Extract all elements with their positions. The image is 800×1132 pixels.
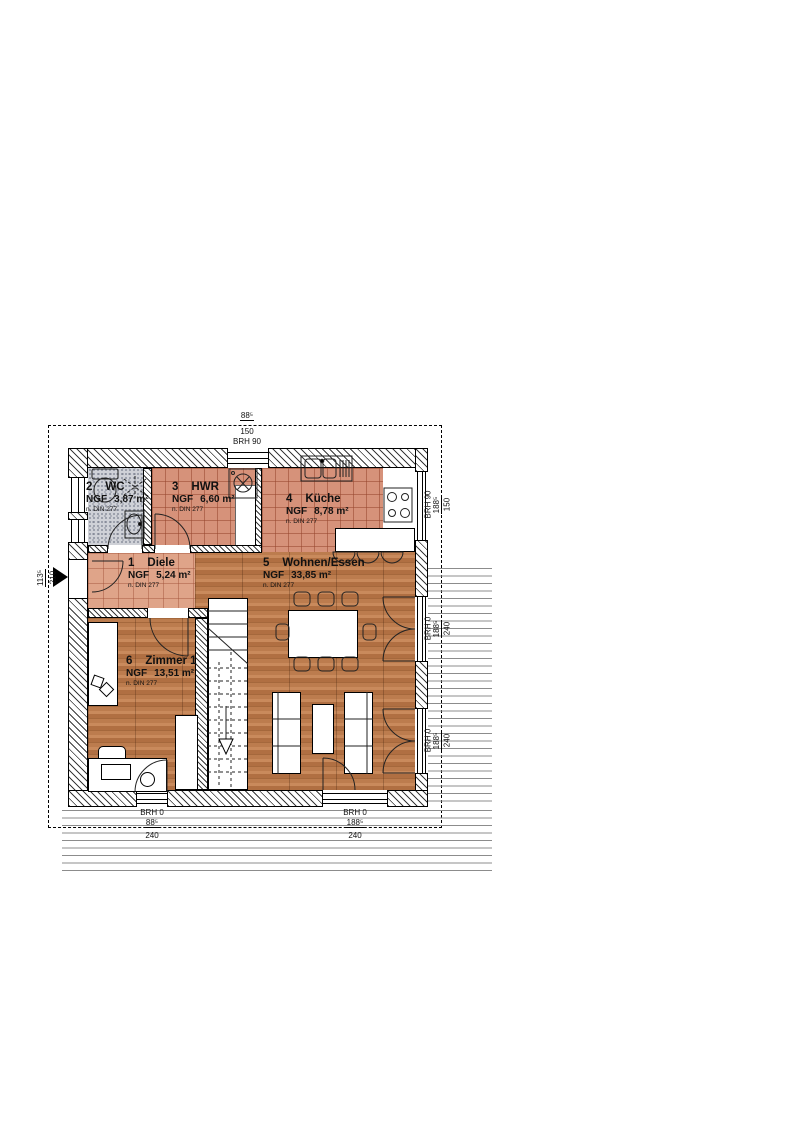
dim-bottom-terrace-width: 188⁵ [330, 818, 380, 828]
wall-bottom-1 [68, 790, 137, 807]
dim-bottom-terrace-height: 240 [330, 831, 380, 840]
desk-monitor [101, 764, 131, 780]
door-entrance-opening [68, 560, 88, 598]
room-name: HWR [191, 481, 218, 493]
room-label-diele: 1Diele NGF5,24 m² n. DIN 277 [128, 557, 191, 589]
sofa-right [344, 692, 373, 774]
room-name: Küche [305, 493, 340, 505]
window-door-terrace [323, 793, 387, 804]
dim-right-kitchen-height: 150 [443, 483, 452, 527]
kitchen-bar-counter [335, 528, 415, 552]
wall-top-left [68, 448, 228, 468]
wall-right-3 [415, 661, 428, 709]
wall-left-1 [68, 448, 88, 478]
stool-zimmer1 [140, 772, 155, 787]
wall-diele-top-a [88, 545, 108, 553]
stairwell [208, 598, 248, 790]
window-top [228, 452, 268, 464]
wall-bottom-2 [167, 790, 323, 807]
hwr-niche [236, 486, 255, 545]
room-label-hwr: 3HWR NGF6,60 m² n. DIN 277 [172, 481, 235, 513]
window-door-zimmer1 [137, 793, 167, 804]
wall-left-2 [68, 512, 88, 520]
dim-right-living-height: 240 [443, 719, 452, 763]
wall-left-4 [68, 598, 88, 807]
wardrobe-zimmer1 [175, 715, 198, 790]
room-number: 5 [263, 557, 269, 569]
room-label-wohnen-essen: 5Wohnen/Essen NGF33,85 m² n. DIN 277 [263, 557, 365, 589]
sofa-left [272, 692, 301, 774]
window-wc [71, 478, 85, 512]
dim-bottom-zimmer-height: 240 [127, 831, 177, 840]
dim-top-height: 150 [222, 427, 272, 436]
room-number: 1 [128, 557, 134, 569]
dim-right-kitchen-width: 188⁵ [432, 483, 442, 527]
wall-diele-top-b [142, 545, 155, 553]
room-label-kueche: 4Küche NGF8,78 m² n. DIN 277 [286, 493, 349, 525]
room-name: Zimmer 1 [145, 655, 196, 667]
floorplan-canvas: 2WC NGF3,87 m² n. DIN 277 3HWR NGF6,60 m… [0, 0, 800, 1132]
coffee-table [312, 704, 334, 754]
room-name: Wohnen/Essen [282, 557, 364, 569]
room-number: 4 [286, 493, 292, 505]
dim-entrance-height: 210 [49, 556, 58, 600]
room-number: 3 [172, 481, 178, 493]
dim-entrance-width: 113⁵ [36, 556, 46, 600]
wall-left-3 [68, 542, 88, 560]
wall-zimmer1-top-b [188, 608, 208, 618]
deck-right [428, 568, 492, 808]
dim-top-brh: BRH 90 [222, 437, 272, 446]
wall-zimmer1-top-a [88, 608, 148, 618]
wall-bottom-3 [387, 790, 428, 807]
dim-bottom-terrace-brh: BRH 0 [330, 808, 380, 817]
wall-right-2 [415, 540, 428, 597]
room-name: WC [105, 481, 124, 493]
dim-bottom-zimmer-brh: BRH 0 [127, 808, 177, 817]
wall-top-right [268, 448, 428, 468]
wall-right-1 [415, 448, 428, 472]
dining-table [288, 610, 358, 658]
dim-right-living-width: 188⁵ [432, 719, 442, 763]
room-label-zimmer1: 6Zimmer 1 NGF13,51 m² n. DIN 277 [126, 655, 197, 687]
wall-diele-top-c [190, 545, 262, 553]
room-number: 2 [86, 481, 92, 493]
window-sidelight [71, 520, 85, 542]
room-label-wc: 2WC NGF3,87 m² n. DIN 277 [86, 481, 149, 513]
dim-right-dining-height: 240 [443, 607, 452, 651]
dim-right-dining-width: 188⁵ [432, 607, 442, 651]
dim-bottom-zimmer-width: 88⁵ [127, 818, 177, 828]
dim-top-width: 88⁵ [222, 411, 272, 421]
wall-hwr-kueche [255, 468, 262, 552]
room-name: Diele [147, 557, 175, 569]
room-number: 6 [126, 655, 132, 667]
